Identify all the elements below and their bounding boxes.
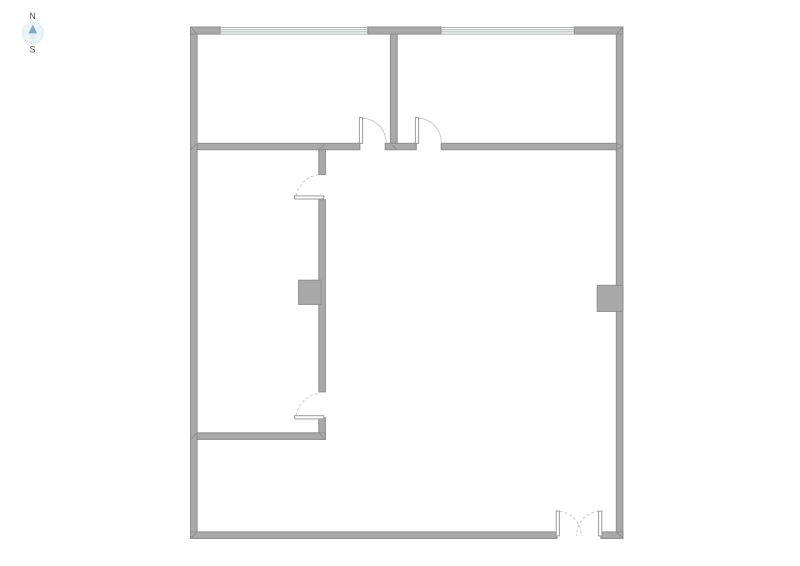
svg-text:N: N <box>29 11 35 21</box>
svg-text:S: S <box>30 44 36 54</box>
